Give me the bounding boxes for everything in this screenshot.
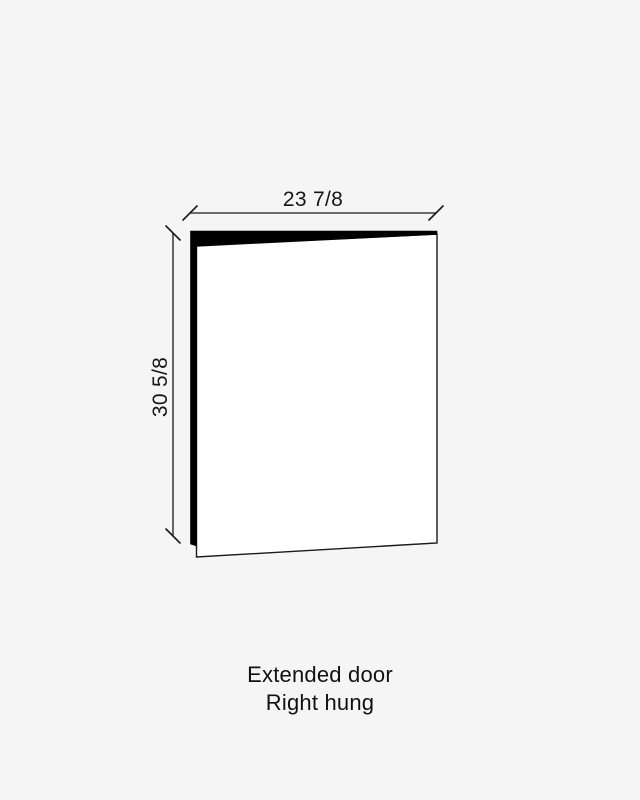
page-background: 23 7/8 30 5/8 Extended door Right hung xyxy=(0,0,640,800)
caption-line-2: Right hung xyxy=(120,689,520,717)
door-left-edge-face xyxy=(191,231,197,546)
caption-line-1: Extended door xyxy=(120,661,520,689)
height-dimension-label: 30 5/8 xyxy=(149,326,173,448)
caption: Extended door Right hung xyxy=(120,661,520,717)
width-dimension-label: 23 7/8 xyxy=(193,188,433,212)
door-face xyxy=(197,234,438,557)
